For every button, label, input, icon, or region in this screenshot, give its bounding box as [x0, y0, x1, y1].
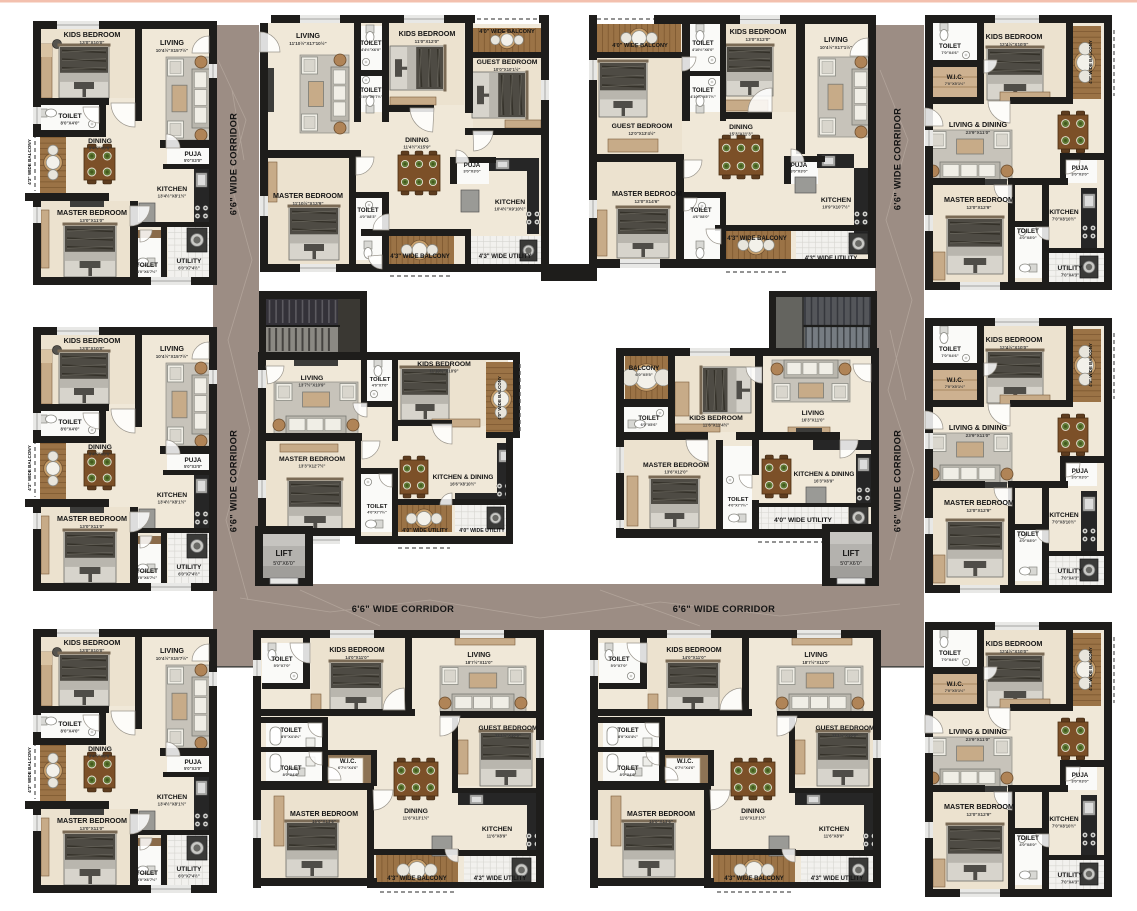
- svg-text:4'0"X7'0": 4'0"X7'0": [372, 384, 389, 388]
- svg-text:PUJA: PUJA: [184, 457, 201, 464]
- svg-text:TOILET: TOILET: [939, 650, 961, 657]
- svg-text:14'0"X11'0": 14'0"X11'0": [345, 655, 369, 660]
- svg-text:12'4½"X10'0": 12'4½"X10'0": [1000, 648, 1029, 654]
- svg-text:MASTER BEDROOM: MASTER BEDROOM: [627, 811, 695, 818]
- svg-text:4'0"X6'7½": 4'0"X6'7½": [137, 877, 158, 882]
- svg-text:KIDS BEDROOM: KIDS BEDROOM: [399, 29, 456, 38]
- svg-text:4'3" WIDE BALCONY: 4'3" WIDE BALCONY: [27, 139, 32, 185]
- svg-text:6'0"X5'6": 6'0"X5'6": [641, 422, 658, 427]
- svg-text:12'0"X13'4½": 12'0"X13'4½": [629, 131, 656, 136]
- svg-text:W.I.C.: W.I.C.: [947, 681, 964, 688]
- svg-text:6'0"X7'4½": 6'0"X7'4½": [178, 572, 200, 577]
- svg-text:LIVING & DINING: LIVING & DINING: [949, 120, 1008, 129]
- svg-text:12'0"X14'6": 12'0"X14'6": [635, 199, 660, 204]
- svg-text:16'3"X6'9": 16'3"X6'9": [814, 479, 834, 484]
- svg-text:13'3"X12'7½": 13'3"X12'7½": [299, 464, 326, 469]
- svg-text:LIVING: LIVING: [160, 38, 184, 47]
- svg-text:13'7½"X10'9": 13'7½"X10'9": [299, 383, 326, 388]
- svg-text:11'4½"X15'9": 11'4½"X15'9": [403, 145, 430, 150]
- svg-text:4'3" WIDE UTILITY: 4'3" WIDE UTILITY: [474, 876, 527, 882]
- svg-text:GUEST BEDROOM: GUEST BEDROOM: [479, 725, 538, 732]
- svg-text:KITCHEN: KITCHEN: [157, 794, 187, 801]
- svg-text:TOILET: TOILET: [1017, 228, 1039, 235]
- svg-text:14'0"X11'0": 14'0"X11'0": [682, 655, 706, 660]
- svg-text:13'0"X10'0": 13'0"X10'0": [80, 346, 105, 351]
- svg-text:7'0"X8'10½": 7'0"X8'10½": [1052, 824, 1076, 829]
- svg-text:4'3" WIDE BALCONY: 4'3" WIDE BALCONY: [724, 876, 784, 882]
- svg-text:4'0" WIDE UTILITY: 4'0" WIDE UTILITY: [459, 528, 505, 534]
- svg-text:23'9"X11'0": 23'9"X11'0": [966, 433, 991, 438]
- svg-text:7'0"X5'1½": 7'0"X5'1½": [945, 384, 966, 389]
- svg-text:8'0"X4'0": 8'0"X4'0": [61, 121, 80, 126]
- svg-text:12'4½"X10'0": 12'4½"X10'0": [1000, 41, 1029, 47]
- svg-text:11'10½"X10'9": 11'10½"X10'9": [429, 369, 458, 374]
- svg-text:KIDS BEDROOM: KIDS BEDROOM: [730, 27, 787, 36]
- svg-text:4'0"X8'0": 4'0"X8'0": [1019, 842, 1036, 847]
- svg-text:PUJA: PUJA: [184, 759, 201, 766]
- svg-text:MASTER BEDROOM: MASTER BEDROOM: [944, 195, 1014, 204]
- svg-text:3'0"X3'0": 3'0"X3'0": [463, 169, 480, 174]
- svg-text:KIDS BEDROOM: KIDS BEDROOM: [986, 32, 1043, 41]
- svg-text:11'6"X11'4½": 11'6"X11'4½": [703, 423, 729, 428]
- svg-text:6'0"X7'4½": 6'0"X7'4½": [178, 874, 200, 879]
- svg-text:BALCONY: BALCONY: [629, 365, 660, 372]
- svg-text:KITCHEN: KITCHEN: [157, 186, 187, 193]
- svg-text:4'3" WIDE BALCONY: 4'3" WIDE BALCONY: [27, 445, 32, 491]
- svg-text:4'3" WIDE UTILITY: 4'3" WIDE UTILITY: [811, 876, 864, 882]
- svg-text:4'0"X7'7½": 4'0"X7'7½": [367, 511, 387, 515]
- svg-text:UTILITY: UTILITY: [177, 866, 203, 873]
- svg-text:KITCHEN: KITCHEN: [1049, 816, 1079, 823]
- svg-text:GUEST BEDROOM: GUEST BEDROOM: [816, 725, 875, 732]
- svg-text:13'4½"X8'1½": 13'4½"X8'1½": [158, 500, 187, 505]
- svg-text:4'6"X8'0": 4'6"X8'0": [693, 214, 710, 219]
- svg-text:TOILET: TOILET: [1017, 835, 1039, 842]
- svg-text:7'0"X4'6": 7'0"X4'6": [941, 353, 958, 358]
- svg-text:W.I.C.: W.I.C.: [947, 74, 964, 81]
- svg-text:4'3" WIDE UTILITY: 4'3" WIDE UTILITY: [805, 256, 858, 262]
- svg-text:7'0"X4'3": 7'0"X4'3": [1061, 576, 1079, 581]
- svg-text:KITCHEN: KITCHEN: [821, 197, 851, 204]
- svg-text:7'0"X4'3": 7'0"X4'3": [1061, 273, 1079, 278]
- svg-text:10'4½"X15'7½": 10'4½"X15'7½": [156, 353, 189, 359]
- svg-text:4'0" WIDE BALCONY: 4'0" WIDE BALCONY: [612, 43, 668, 49]
- svg-text:11'6"X8'9": 11'6"X8'9": [824, 834, 845, 839]
- svg-text:TOILET: TOILET: [939, 43, 961, 50]
- svg-text:5'0"X3'0": 5'0"X3'0": [184, 158, 202, 163]
- svg-text:DINING: DINING: [88, 444, 112, 451]
- svg-text:DINING: DINING: [404, 808, 428, 815]
- svg-text:TOILET: TOILET: [58, 113, 81, 120]
- svg-text:DINING: DINING: [729, 124, 753, 131]
- svg-text:TOILET: TOILET: [58, 721, 81, 728]
- svg-text:MASTER BEDROOM: MASTER BEDROOM: [612, 189, 682, 198]
- svg-text:5'0"X6'0": 5'0"X6'0": [840, 561, 862, 567]
- svg-text:4'10½"X5'7½": 4'10½"X5'7½": [690, 94, 716, 99]
- svg-text:PUJA: PUJA: [184, 151, 201, 158]
- svg-text:TOILET: TOILET: [136, 262, 158, 269]
- svg-text:6'6" WIDE CORRIDOR: 6'6" WIDE CORRIDOR: [893, 430, 903, 532]
- svg-text:LIVING & DINING: LIVING & DINING: [949, 727, 1008, 736]
- svg-text:11'0"X12'0": 11'0"X12'0": [415, 39, 440, 44]
- svg-text:23'9"X11'0": 23'9"X11'0": [966, 737, 991, 742]
- svg-text:13'0"X11'0": 13'0"X11'0": [80, 524, 105, 529]
- svg-text:LIVING: LIVING: [802, 410, 825, 417]
- svg-text:LIVING: LIVING: [467, 652, 491, 659]
- svg-text:LIVING: LIVING: [804, 652, 828, 659]
- svg-text:6'6" WIDE CORRIDOR: 6'6" WIDE CORRIDOR: [673, 604, 775, 614]
- svg-text:KIDS BEDROOM: KIDS BEDROOM: [64, 638, 121, 647]
- svg-text:5'0"X7'0": 5'0"X7'0": [274, 663, 291, 668]
- svg-text:LIVING: LIVING: [296, 31, 320, 40]
- svg-text:15'0"X13'6": 15'0"X13'6": [312, 819, 336, 824]
- svg-text:KIDS BEDROOM: KIDS BEDROOM: [329, 647, 384, 654]
- svg-text:6'6" WIDE CORRIDOR: 6'6" WIDE CORRIDOR: [352, 604, 454, 614]
- svg-text:TOILET: TOILET: [1017, 531, 1039, 538]
- svg-text:KIDS BEDROOM: KIDS BEDROOM: [417, 361, 471, 368]
- svg-text:UTILITY: UTILITY: [1058, 872, 1084, 879]
- svg-text:4'3" WIDE BALCONY: 4'3" WIDE BALCONY: [387, 876, 447, 882]
- svg-text:6'0"X5'5": 6'0"X5'5": [635, 372, 652, 377]
- svg-text:5'0"X6'0": 5'0"X6'0": [273, 561, 295, 567]
- svg-text:MASTER BEDROOM: MASTER BEDROOM: [944, 802, 1014, 811]
- svg-text:6'7½"X4'6": 6'7½"X4'6": [675, 765, 695, 770]
- svg-text:7'0"X5'1½": 7'0"X5'1½": [945, 81, 966, 86]
- svg-text:LIVING: LIVING: [824, 35, 848, 44]
- svg-text:9'4½"X8'6": 9'4½"X8'6": [89, 146, 112, 151]
- svg-text:10'4½"X9'10½": 10'4½"X9'10½": [494, 207, 525, 212]
- svg-text:DINING: DINING: [88, 746, 112, 753]
- svg-text:13'0"X10'0": 13'0"X10'0": [80, 648, 105, 653]
- svg-text:3'0"X3'0": 3'0"X3'0": [1071, 779, 1088, 784]
- svg-text:MASTER BEDROOM: MASTER BEDROOM: [290, 811, 358, 818]
- svg-text:8'0"X4'6": 8'0"X4'6": [283, 772, 300, 777]
- svg-text:UTILITY: UTILITY: [1058, 265, 1084, 272]
- svg-text:LIVING: LIVING: [301, 375, 324, 382]
- svg-text:15'0"X13'6": 15'0"X13'6": [649, 819, 673, 824]
- svg-text:W.I.C.: W.I.C.: [947, 377, 964, 384]
- svg-text:4'3" WIDE BALCONY: 4'3" WIDE BALCONY: [27, 747, 32, 793]
- svg-text:7'0"X8'10½": 7'0"X8'10½": [1052, 217, 1076, 222]
- svg-text:4'3" WIDE UTILITY: 4'3" WIDE UTILITY: [479, 254, 532, 260]
- svg-text:KITCHEN & DINING: KITCHEN & DINING: [794, 471, 855, 478]
- svg-text:MASTER BEDROOM: MASTER BEDROOM: [279, 456, 345, 463]
- svg-text:6'0"X7'4½": 6'0"X7'4½": [178, 266, 200, 271]
- svg-text:6'6" WIDE CORRIDOR: 6'6" WIDE CORRIDOR: [229, 430, 239, 532]
- svg-text:TOILET: TOILET: [728, 497, 749, 503]
- svg-text:4'0"X8'3": 4'0"X8'3": [360, 214, 377, 219]
- svg-text:UTILITY: UTILITY: [177, 258, 203, 265]
- svg-text:7'0"X4'6": 7'0"X4'6": [941, 657, 958, 662]
- svg-text:KIDS BEDROOM: KIDS BEDROOM: [689, 415, 743, 422]
- svg-text:11'6"X8'9": 11'6"X8'9": [487, 834, 508, 839]
- svg-text:KITCHEN: KITCHEN: [819, 826, 849, 833]
- svg-text:8'0"X4'0": 8'0"X4'0": [61, 729, 80, 734]
- svg-text:4'3" WIDE BALCONY: 4'3" WIDE BALCONY: [390, 254, 450, 260]
- svg-text:10'4½"X15'7½": 10'4½"X15'7½": [156, 47, 189, 53]
- svg-text:KITCHEN: KITCHEN: [495, 199, 525, 206]
- svg-text:13'6"X12'0": 13'6"X12'0": [664, 470, 687, 475]
- svg-text:10'4½"X17'1½": 10'4½"X17'1½": [820, 44, 853, 50]
- svg-text:TOILET: TOILET: [136, 870, 158, 877]
- svg-text:11'10½"X13'9": 11'10½"X13'9": [292, 200, 323, 206]
- svg-text:KIDS BEDROOM: KIDS BEDROOM: [986, 639, 1043, 648]
- svg-text:9'4½"X8'6": 9'4½"X8'6": [89, 754, 112, 759]
- svg-text:KIDS BEDROOM: KIDS BEDROOM: [64, 336, 121, 345]
- svg-text:DINING: DINING: [405, 137, 429, 144]
- svg-text:MASTER BEDROOM: MASTER BEDROOM: [273, 191, 343, 200]
- svg-text:5'0"X3'0": 5'0"X3'0": [184, 464, 202, 469]
- svg-text:DINING: DINING: [88, 138, 112, 145]
- svg-text:5'0"X7'0": 5'0"X7'0": [611, 663, 628, 668]
- svg-text:11'10½"X17'10½": 11'10½"X17'10½": [289, 40, 326, 46]
- svg-text:13'0"X11'0": 13'0"X11'0": [80, 826, 105, 831]
- svg-text:LIVING & DINING: LIVING & DINING: [949, 423, 1008, 432]
- svg-text:TOILET: TOILET: [939, 346, 961, 353]
- svg-text:7'0"X4'6": 7'0"X4'6": [941, 50, 958, 55]
- svg-text:9'4½"X8'6": 9'4½"X8'6": [89, 452, 112, 457]
- svg-text:MASTER BEDROOM: MASTER BEDROOM: [57, 514, 127, 523]
- svg-text:KIDS BEDROOM: KIDS BEDROOM: [666, 647, 721, 654]
- svg-text:16'3"X11'0": 16'3"X11'0": [801, 418, 824, 423]
- svg-text:4'0"X8'0": 4'0"X8'0": [1019, 235, 1036, 240]
- svg-text:4'0" WIDE UTILITY: 4'0" WIDE UTILITY: [402, 528, 448, 534]
- svg-text:12'0"X12'9": 12'0"X12'9": [967, 205, 992, 210]
- svg-text:12'0"X12'9": 12'0"X12'9": [967, 508, 992, 513]
- svg-text:KITCHEN: KITCHEN: [1049, 512, 1079, 519]
- svg-text:13'0"X11'0": 13'0"X11'0": [80, 218, 105, 223]
- svg-text:4'0" WIDE BALCONY: 4'0" WIDE BALCONY: [497, 376, 502, 420]
- svg-text:8'0"X4'4½": 8'0"X4'4½": [618, 734, 638, 739]
- svg-text:23'9"X11'0": 23'9"X11'0": [966, 130, 991, 135]
- svg-text:4'0" WIDE UTILITY: 4'0" WIDE UTILITY: [774, 517, 832, 524]
- svg-text:MASTER BEDROOM: MASTER BEDROOM: [643, 462, 709, 469]
- svg-text:11'6"X13'1½": 11'6"X13'1½": [740, 816, 767, 821]
- svg-text:10'4½"X15'7½": 10'4½"X15'7½": [156, 655, 189, 661]
- svg-text:TOILET: TOILET: [136, 568, 158, 575]
- svg-text:UTILITY: UTILITY: [177, 564, 203, 571]
- svg-text:4'4½"X5'7½": 4'4½"X5'7½": [359, 94, 382, 99]
- svg-text:10'0"X10'1½": 10'0"X10'1½": [494, 67, 521, 72]
- svg-text:12'4½"X10'0": 12'4½"X10'0": [1000, 344, 1029, 350]
- svg-text:13'4½"X8'1½": 13'4½"X8'1½": [158, 802, 187, 807]
- svg-text:6'7½"X4'6": 6'7½"X4'6": [338, 765, 358, 770]
- svg-text:GUEST BEDROOM: GUEST BEDROOM: [612, 123, 673, 130]
- svg-text:8'0"X4'6": 8'0"X4'6": [620, 772, 637, 777]
- svg-text:4'3" WIDE BALCONY: 4'3" WIDE BALCONY: [727, 236, 787, 242]
- svg-text:TOILET: TOILET: [58, 419, 81, 426]
- svg-text:13'0"X12'0": 13'0"X12'0": [746, 37, 771, 42]
- svg-text:MASTER BEDROOM: MASTER BEDROOM: [57, 816, 127, 825]
- svg-text:6'6" WIDE CORRIDOR: 6'6" WIDE CORRIDOR: [229, 113, 239, 215]
- svg-text:KIDS BEDROOM: KIDS BEDROOM: [64, 30, 121, 39]
- svg-text:7'0"X8'10½": 7'0"X8'10½": [1052, 520, 1076, 525]
- svg-text:LIFT: LIFT: [843, 549, 860, 558]
- svg-text:3'0"X3'0": 3'0"X3'0": [790, 169, 807, 174]
- svg-text:13'4½"X8'1½": 13'4½"X8'1½": [158, 194, 187, 199]
- svg-text:4'0"X6'7½": 4'0"X6'7½": [137, 269, 158, 274]
- svg-text:MASTER BEDROOM: MASTER BEDROOM: [944, 498, 1014, 507]
- svg-text:18'7½"X11'0": 18'7½"X11'0": [465, 660, 492, 665]
- svg-text:4'0"X7'7½": 4'0"X7'7½": [728, 504, 748, 508]
- svg-text:12'0"X12'9": 12'0"X12'9": [967, 812, 992, 817]
- svg-text:4'3" WIDE BALCONY: 4'3" WIDE BALCONY: [1088, 647, 1093, 691]
- svg-text:11'1½"X10'0": 11'1½"X10'0": [832, 733, 858, 738]
- svg-text:16'6"X8'10½": 16'6"X8'10½": [450, 482, 476, 487]
- svg-text:KIDS BEDROOM: KIDS BEDROOM: [986, 335, 1043, 344]
- svg-text:MASTER BEDROOM: MASTER BEDROOM: [57, 208, 127, 217]
- svg-text:7'0"X4'3": 7'0"X4'3": [1061, 880, 1079, 885]
- svg-text:6'6" WIDE CORRIDOR: 6'6" WIDE CORRIDOR: [893, 108, 903, 210]
- svg-text:15'3"X11'3": 15'3"X11'3": [729, 132, 753, 137]
- svg-text:LIVING: LIVING: [160, 344, 184, 353]
- svg-text:UTILITY: UTILITY: [1058, 568, 1084, 575]
- svg-text:DINING: DINING: [741, 808, 765, 815]
- svg-text:4'0"X6'7½": 4'0"X6'7½": [137, 575, 158, 580]
- svg-text:4'10½"X6'0": 4'10½"X6'0": [692, 47, 714, 52]
- svg-text:11'6"X13'1½": 11'6"X13'1½": [403, 816, 430, 821]
- svg-text:18'7½"X11'0": 18'7½"X11'0": [802, 660, 829, 665]
- svg-text:TOILET: TOILET: [367, 504, 388, 510]
- svg-text:4'4½"X6'0": 4'4½"X6'0": [361, 47, 381, 52]
- svg-text:8'0"X4'4½": 8'0"X4'4½": [281, 734, 301, 739]
- svg-text:3'0"X3'0": 3'0"X3'0": [1071, 172, 1088, 177]
- svg-text:8'0"X4'0": 8'0"X4'0": [61, 427, 80, 432]
- svg-text:KITCHEN & DINING: KITCHEN & DINING: [433, 474, 494, 481]
- svg-text:KITCHEN: KITCHEN: [157, 492, 187, 499]
- svg-text:4'3" WIDE BALCONY: 4'3" WIDE BALCONY: [1088, 343, 1093, 387]
- svg-text:3'0"X3'0": 3'0"X3'0": [1071, 475, 1088, 480]
- svg-text:TOILET: TOILET: [370, 377, 391, 383]
- svg-text:LIVING: LIVING: [160, 646, 184, 655]
- svg-text:7'0"X5'1½": 7'0"X5'1½": [945, 688, 966, 693]
- svg-text:4'0" WIDE BALCONY: 4'0" WIDE BALCONY: [479, 29, 535, 35]
- svg-text:11'1½"X10'0": 11'1½"X10'0": [495, 733, 521, 738]
- svg-text:LIFT: LIFT: [276, 549, 293, 558]
- svg-text:GUEST BEDROOM: GUEST BEDROOM: [477, 59, 538, 66]
- svg-text:4'3" WIDE BALCONY: 4'3" WIDE BALCONY: [1088, 40, 1093, 84]
- svg-text:KITCHEN: KITCHEN: [1049, 209, 1079, 216]
- svg-text:4'0"X8'0": 4'0"X8'0": [1019, 538, 1036, 543]
- svg-text:KITCHEN: KITCHEN: [482, 826, 512, 833]
- svg-text:10'9"X10'7½": 10'9"X10'7½": [822, 205, 850, 210]
- svg-text:5'0"X3'0": 5'0"X3'0": [184, 766, 202, 771]
- svg-text:13'0"X10'0": 13'0"X10'0": [80, 40, 105, 45]
